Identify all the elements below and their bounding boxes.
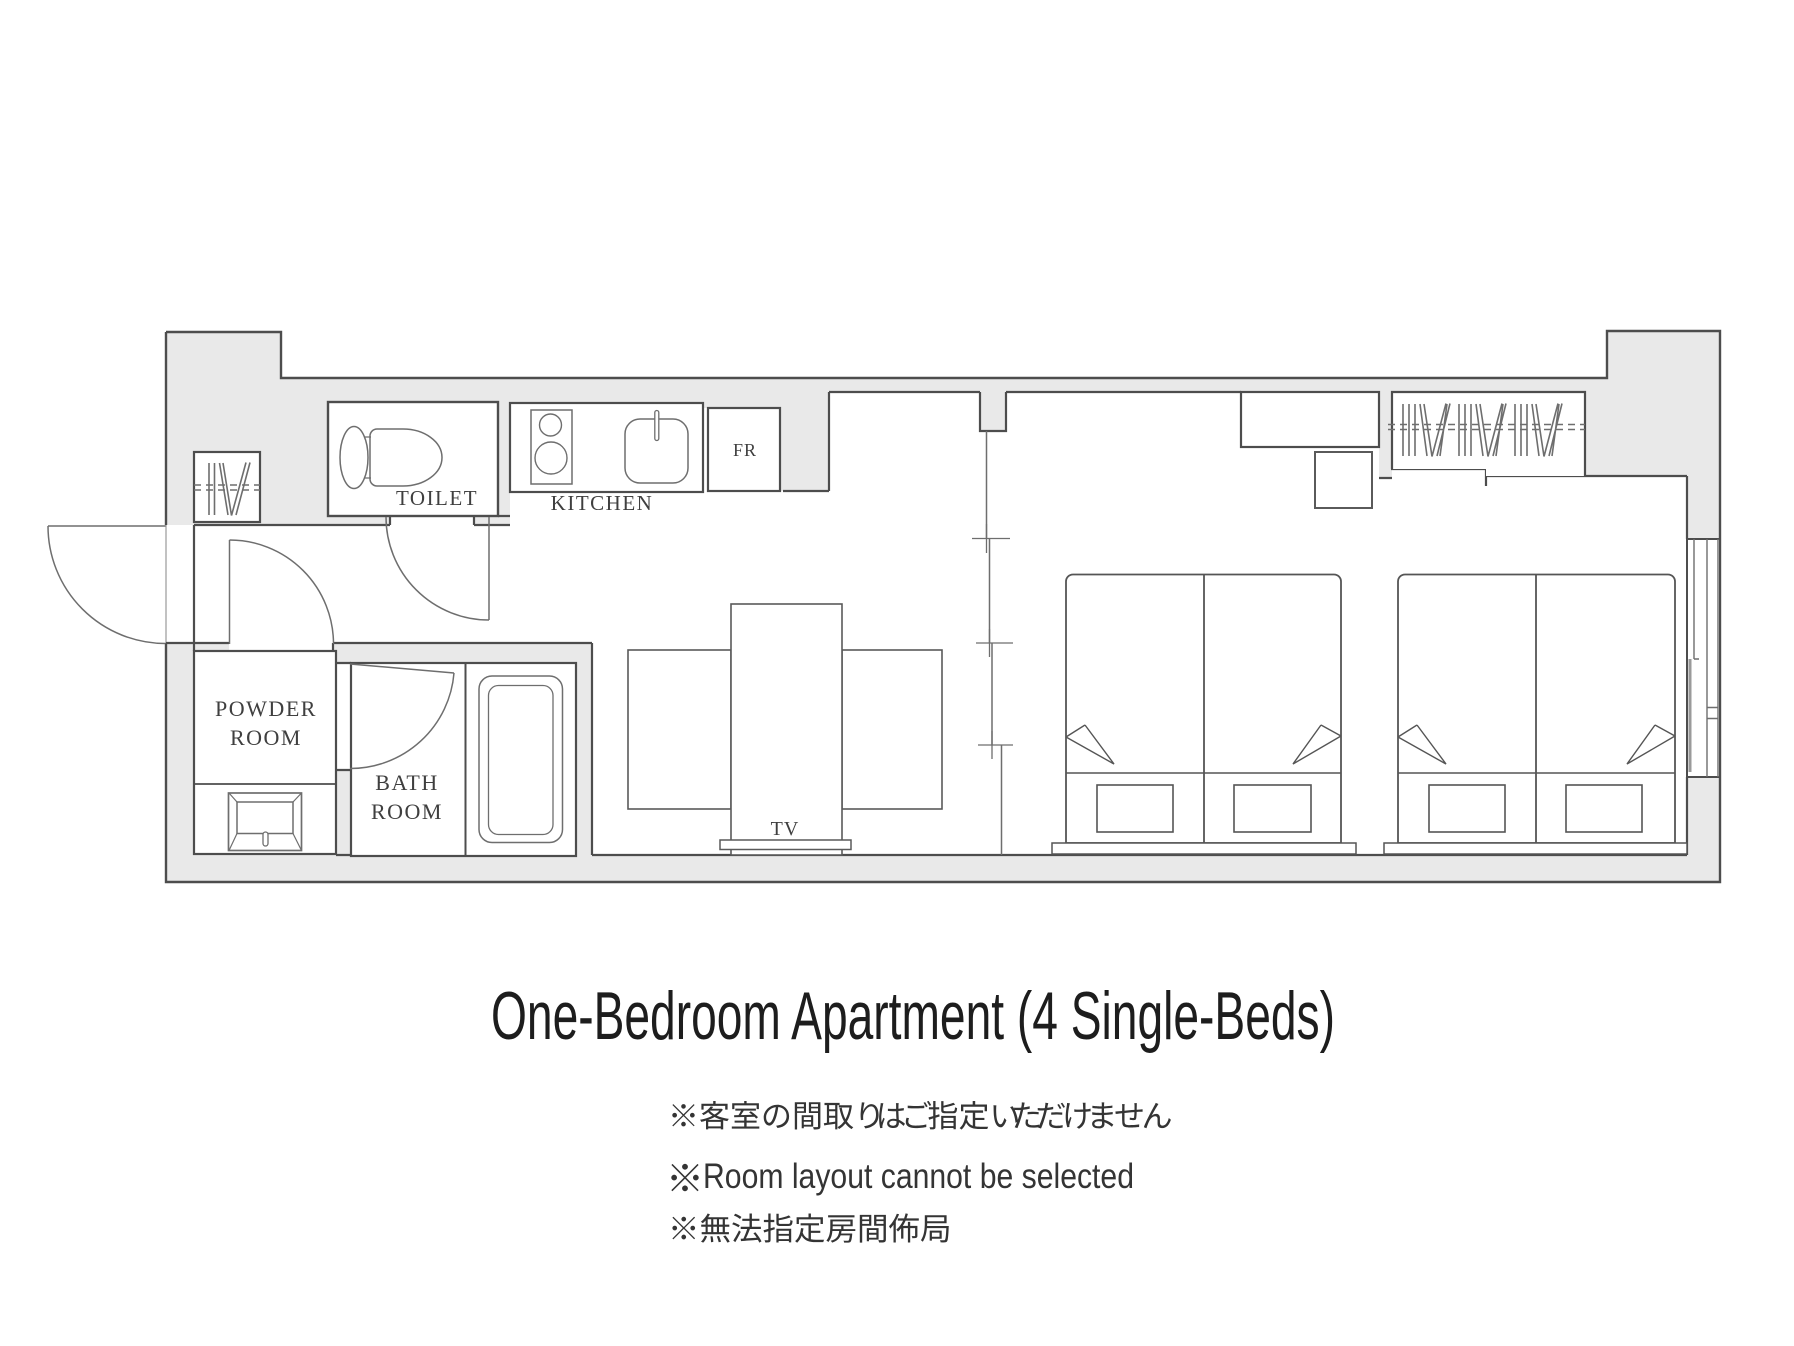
svg-text:FR: FR — [733, 440, 757, 460]
svg-text:POWDER: POWDER — [215, 696, 317, 721]
svg-text:TV: TV — [771, 818, 800, 840]
svg-text:BATH: BATH — [375, 770, 438, 795]
svg-text:TOILET: TOILET — [396, 486, 478, 510]
svg-text:ROOM: ROOM — [371, 799, 443, 824]
svg-text:One-Bedroom Apartment (4 Singl: One-Bedroom Apartment (4 Single-Beds) — [491, 978, 1335, 1054]
svg-text:Room layout cannot be selected: Room layout cannot be selected — [703, 1157, 1134, 1196]
svg-text:KITCHEN: KITCHEN — [551, 491, 654, 515]
svg-text:ROOM: ROOM — [230, 725, 302, 750]
